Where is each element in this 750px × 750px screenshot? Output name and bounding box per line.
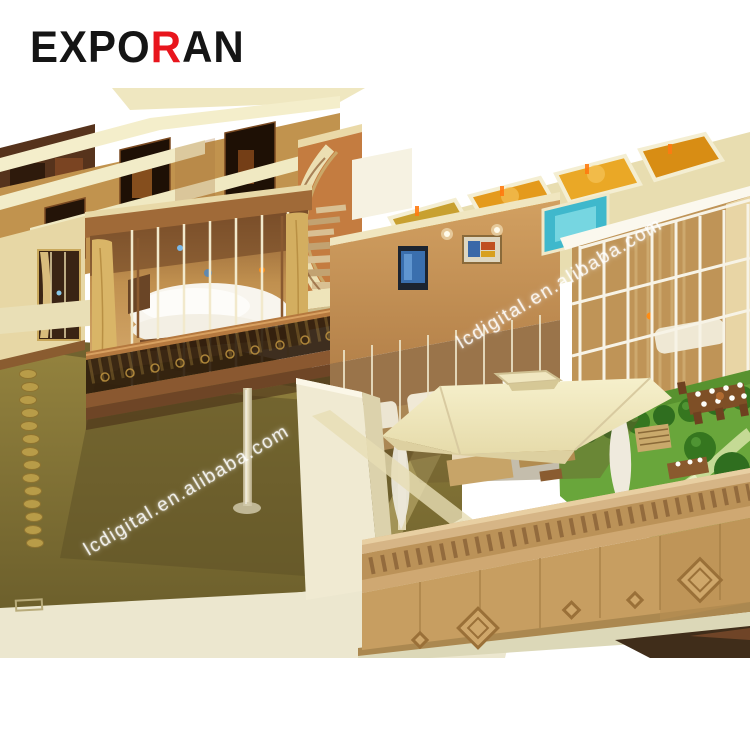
- left-wall: [0, 216, 85, 370]
- wicker-cabinet: [634, 424, 671, 452]
- logo-text-accent: R: [151, 22, 182, 71]
- logo-text-suffix: AN: [182, 22, 245, 71]
- blue-glow: [177, 245, 183, 251]
- product-photo[interactable]: lcdigital.en.alibaba.com lcdigital.en.al…: [0, 88, 750, 658]
- page: EXPORAN: [0, 0, 750, 750]
- glass-vase-foot: [233, 502, 261, 514]
- tv-glow: [57, 291, 62, 296]
- model-photo-illustration: [0, 88, 750, 658]
- brand-logo: EXPORAN: [30, 22, 245, 72]
- logo-text-primary: EXPO: [30, 22, 151, 71]
